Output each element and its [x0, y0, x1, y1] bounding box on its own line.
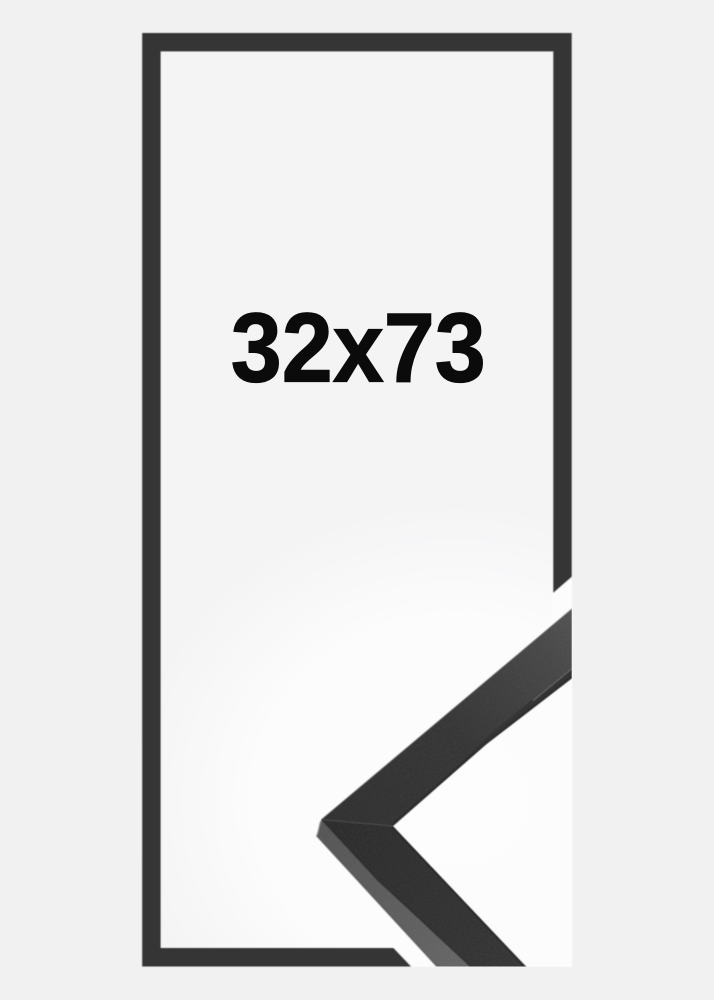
svg-text:32x73: 32x73: [231, 293, 486, 403]
